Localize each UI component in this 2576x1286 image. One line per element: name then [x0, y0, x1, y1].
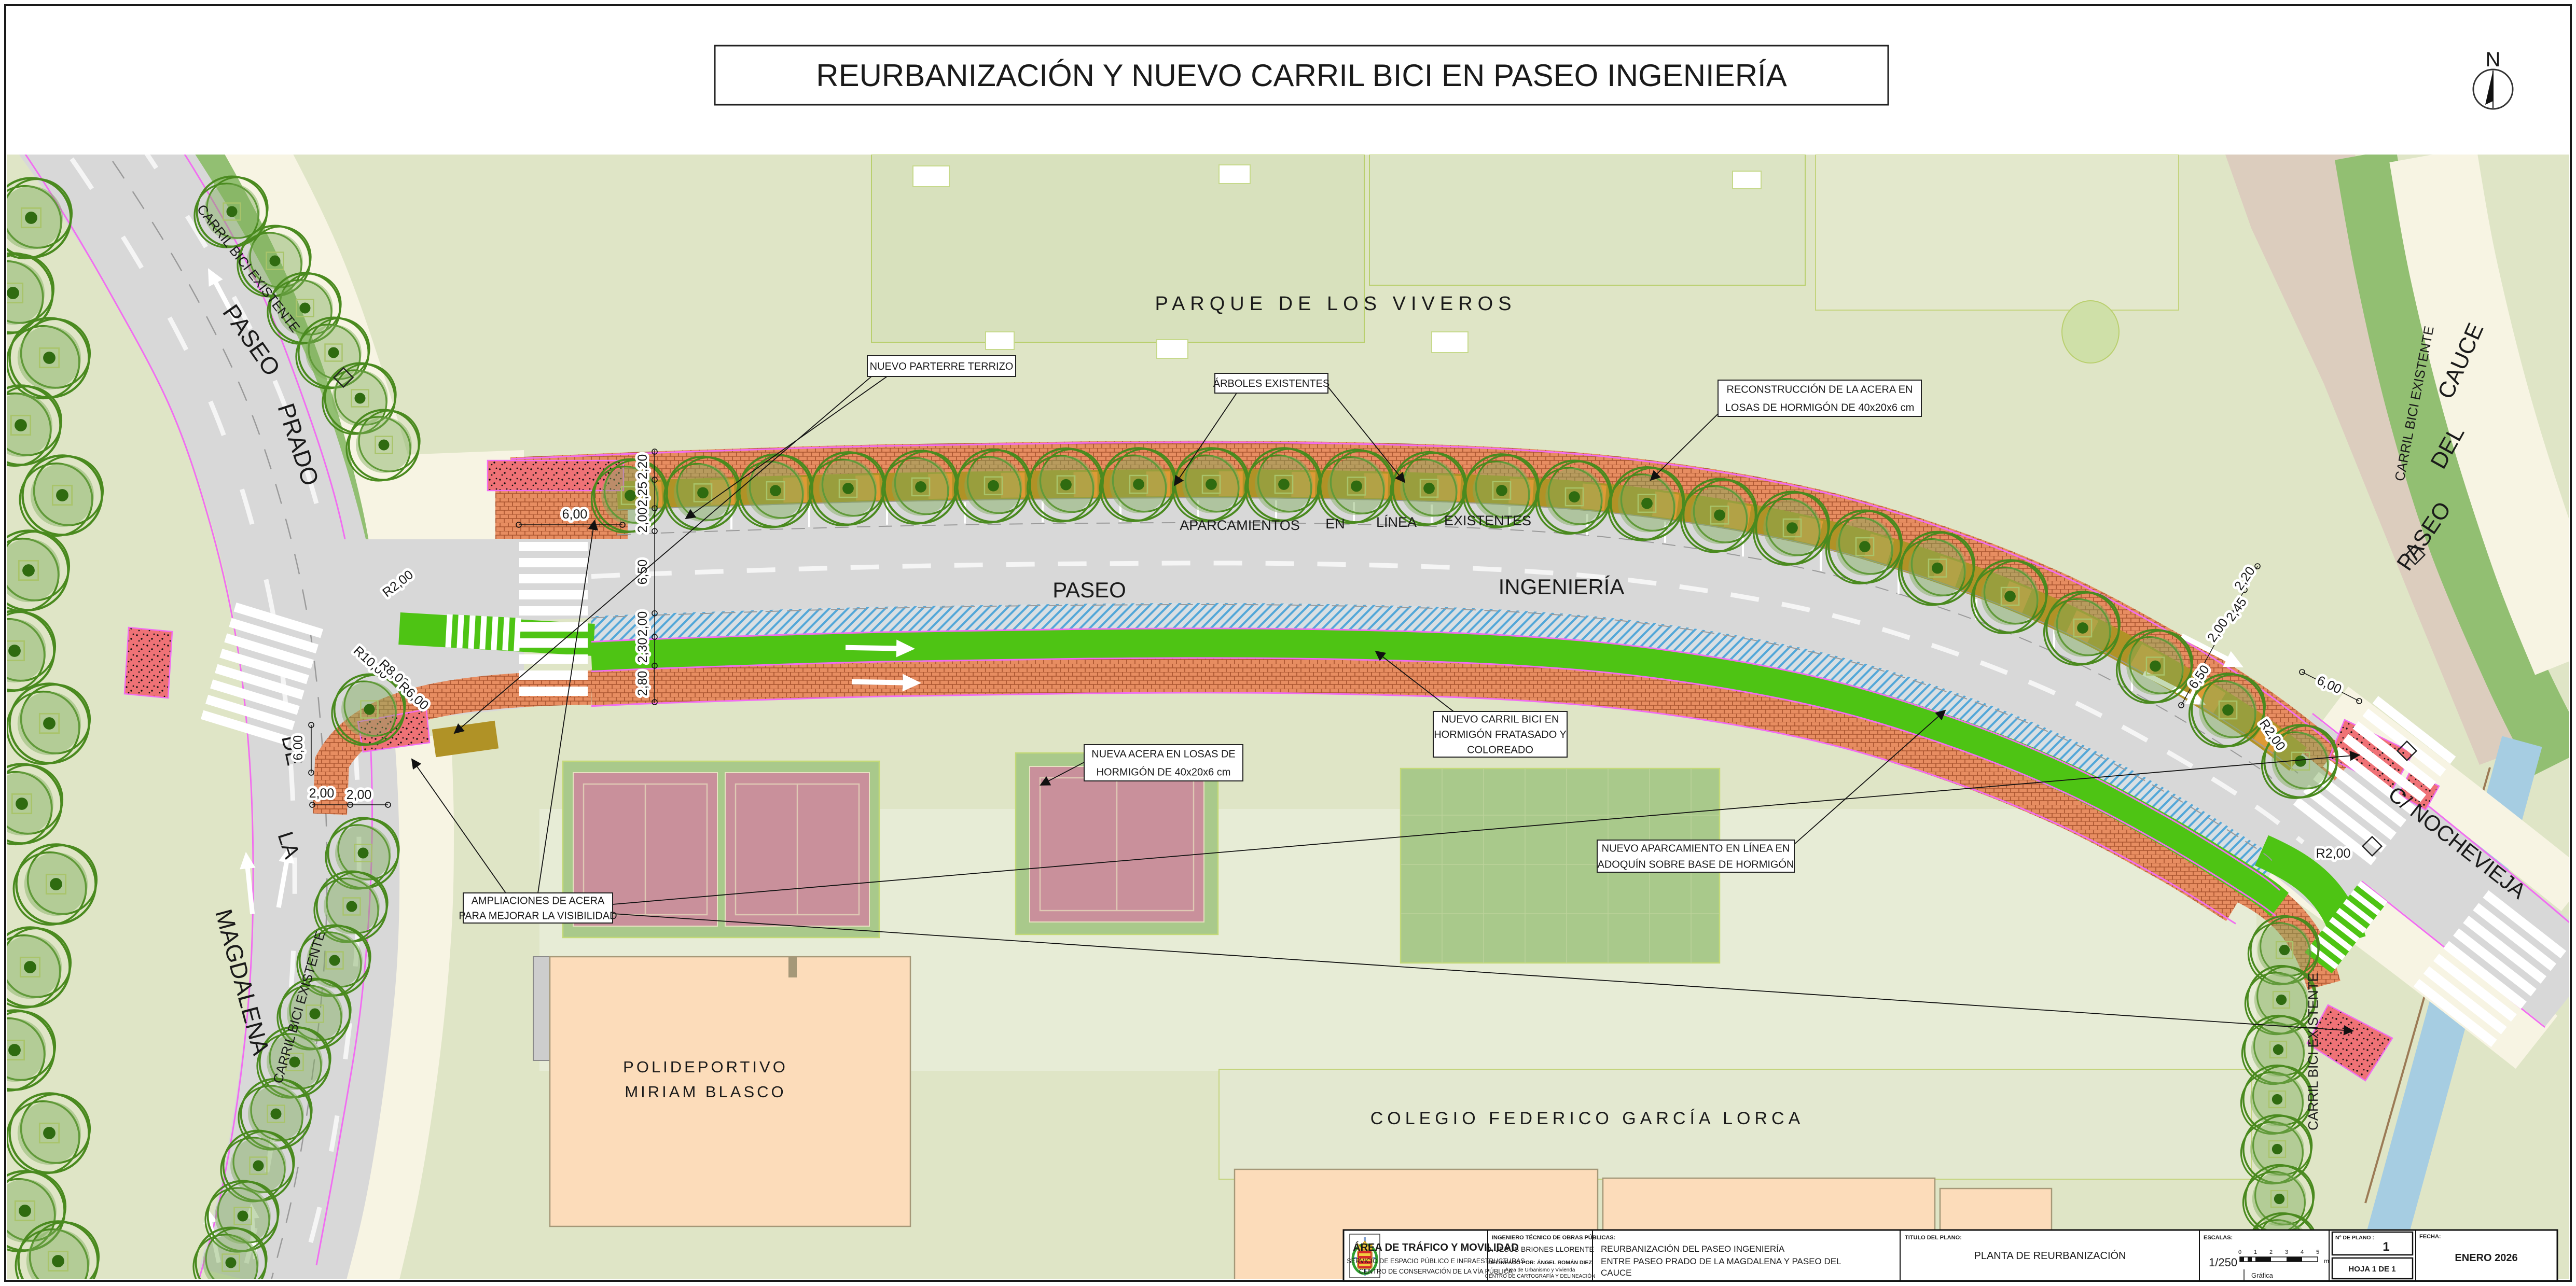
date-label: FECHA:: [2419, 1234, 2441, 1240]
callout-text: HORMIGÓN DE 40x20x6 cm: [1097, 766, 1231, 778]
callout-text: LOSAS DE HORMIGÓN DE 40x20x6 cm: [1725, 402, 1915, 414]
street-label: EN: [1325, 516, 1345, 532]
callout-text: PARA MEJORAR LA VISIBILIDAD: [459, 911, 617, 922]
engineer-name: D. JESÚS BRIONES LLORENTE: [1486, 1245, 1594, 1253]
sheet-number-value: HOJA 1 DE 1: [2348, 1265, 2395, 1274]
callout-text: NUEVO PARTERRE TERRIZO: [870, 361, 1014, 372]
callout-text: AMPLIACIONES DE ACERA: [472, 896, 605, 907]
north-arrow-icon: N: [2473, 48, 2513, 109]
callout-text: ÁRBOLES EXISTENTES: [1213, 378, 1330, 389]
scale-tick: 4: [2301, 1249, 2304, 1255]
callout-box: AMPLIACIONES DE ACERAPARA MEJORAR LA VIS…: [459, 893, 617, 923]
plan-number-label: Nº DE PLANO :: [2335, 1235, 2374, 1241]
dimension-label: 2,20: [635, 454, 650, 480]
callout-text: NUEVA ACERA EN LOSAS DE: [1091, 749, 1236, 760]
dimension-label: 2,00: [347, 788, 372, 802]
callout-text: COLOREADO: [1467, 744, 1533, 756]
callout-text: NUEVO APARCAMIENTO EN LÍNEA EN: [1602, 843, 1790, 855]
dimension-label: 2,30: [635, 638, 650, 663]
north-label: N: [2486, 48, 2501, 71]
building-detail: [788, 957, 797, 977]
bike-crossing: [445, 614, 521, 651]
dimension-label: 6,00: [291, 735, 306, 761]
callout-text: NUEVO CARRIL BICI EN: [1441, 714, 1559, 725]
scale-value: 1/250: [2209, 1256, 2237, 1269]
area-label: MIRIAM BLASCO: [625, 1083, 786, 1101]
new-sidewalk-extension: [124, 627, 172, 698]
project-line2: ENTRE PASEO PRADO DE LA MAGDALENA Y PASE…: [1601, 1256, 1841, 1266]
engineer-label: INGENIERO TÉCNICO DE OBRAS PÚBLICAS:: [1492, 1234, 1615, 1241]
plan-canvas: PASEOPRADODELAMAGDALENAPASEOINGENIERÍAAP…: [0, 0, 2576, 1286]
scale-unit: m: [2324, 1257, 2329, 1265]
dimension-label: 2,25: [635, 482, 650, 507]
dimension-label: 6,00: [562, 507, 588, 522]
plan-sheet: PASEOPRADODELAMAGDALENAPASEOINGENIERÍAAP…: [0, 0, 2576, 1286]
street-label: CARRIL BICI EXISTENTE: [2305, 973, 2321, 1130]
area-label: PARQUE DE LOS VIVEROS: [1155, 293, 1516, 315]
date-value: ENERO 2026: [2455, 1252, 2517, 1264]
callout-text: ADOQUÍN SOBRE BASE DE HORMIGÓN: [1598, 859, 1794, 871]
title-block: ÁREA DE TRÁFICO Y MOVILIDADSERVICIO DE E…: [1344, 1230, 2557, 1281]
dimension-label: 2,00: [635, 611, 650, 637]
dimension-label: 2,80: [635, 671, 650, 696]
street-label: INGENIERÍA: [1499, 575, 1625, 599]
project-line3: CAUCE: [1601, 1268, 1632, 1278]
street-label: PASEO: [1052, 578, 1126, 602]
street-label: LÍNEA: [1376, 514, 1417, 530]
callout-box: NUEVO PARTERRE TERRIZO: [867, 356, 1016, 376]
sheet-header: REURBANIZACIÓN Y NUEVO CARRIL BICI EN PA…: [715, 46, 1888, 105]
drafted-dept2: CENTRO DE CARTOGRAFÍA Y DELINEACIÓN: [1485, 1273, 1596, 1279]
scales-label: ESCALAS:: [2204, 1235, 2233, 1241]
scale-tick: 0: [2238, 1249, 2241, 1255]
scale-tick: 1: [2254, 1249, 2257, 1255]
project-line1: REURBANIZACIÓN DEL PASEO INGENIERÍA: [1601, 1244, 1785, 1254]
sports-court: [1030, 766, 1204, 922]
dimension-label: 2,00: [635, 508, 650, 533]
callout-box: RECONSTRUCCIÓN DE LA ACERA ENLOSAS DE HO…: [1718, 380, 1921, 416]
callout-text: HORMIGÓN FRATASADO Y: [1434, 729, 1567, 740]
drafted-dept1: Área de Urbanismo y Vivienda: [1505, 1266, 1575, 1273]
area-label: COLEGIO FEDERICO GARCÍA LORCA: [1370, 1109, 1805, 1128]
street-label: APARCAMIENTOS: [1180, 518, 1300, 533]
scale-graphic-label: Gráfica: [2251, 1271, 2274, 1279]
plan-number-value: 1: [2383, 1240, 2389, 1254]
plan-title-label: TITULO DEL PLANO:: [1905, 1235, 1962, 1241]
area-label: POLIDEPORTIVO: [623, 1058, 788, 1076]
scale-tick: 5: [2316, 1249, 2319, 1255]
callout-text: RECONSTRUCCIÓN DE LA ACERA EN: [1727, 384, 1913, 396]
callout-box: ÁRBOLES EXISTENTES: [1213, 373, 1330, 393]
page-title: REURBANIZACIÓN Y NUEVO CARRIL BICI EN PA…: [816, 58, 1787, 93]
callout-box: NUEVO CARRIL BICI ENHORMIGÓN FRATASADO Y…: [1433, 711, 1567, 757]
sports-court: [725, 773, 869, 926]
plan-title-value: PLANTA DE REURBANIZACIÓN: [1974, 1250, 2126, 1262]
street-label: EXISTENTES: [1444, 513, 1531, 528]
scale-tick: 3: [2285, 1249, 2288, 1255]
drafted-by: DELINEADO POR: ÁNGEL ROMÁN DIEZ: [1488, 1259, 1592, 1266]
scale-tick: 2: [2269, 1249, 2273, 1255]
dimension-label: R2,00: [2316, 846, 2351, 861]
site-plan: [0, 0, 2576, 1286]
dimension-label: 2,00: [309, 786, 335, 801]
callout-box: NUEVO APARCAMIENTO EN LÍNEA ENADOQUÍN SO…: [1597, 840, 1794, 872]
callout-box: NUEVA ACERA EN LOSAS DEHORMIGÓN DE 40x20…: [1084, 745, 1243, 781]
